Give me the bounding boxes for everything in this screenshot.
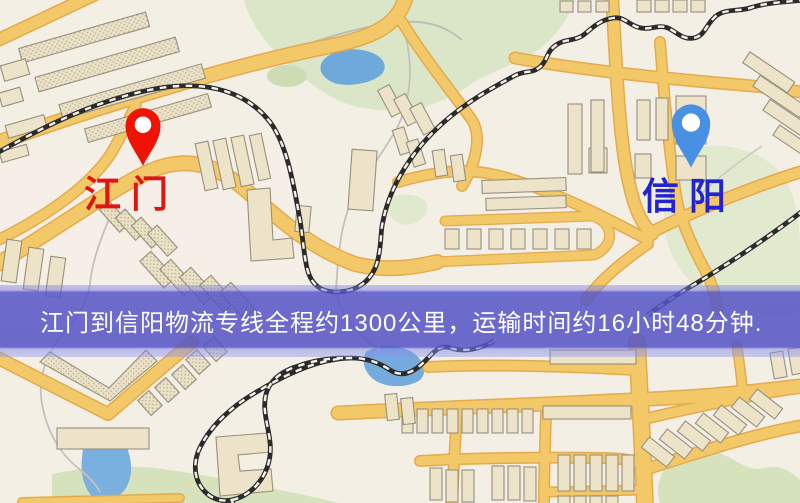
origin-pin-icon[interactable] [122, 104, 164, 170]
destination-city-label: 信阳 [642, 178, 736, 215]
origin-city-label: 江门 [84, 176, 178, 213]
route-info-banner: 江门到信阳物流专线全程约1300公里，运输时间约16小时48分钟. [0, 285, 800, 357]
map-screenshot: 江门 信阳 江门到信阳物流专线全程约1300公里，运输时间约16小时48分钟. [0, 0, 800, 503]
route-info-text: 江门到信阳物流专线全程约1300公里，运输时间约16小时48分钟. [0, 292, 800, 349]
destination-pin-icon[interactable] [668, 102, 714, 170]
map-canvas[interactable] [0, 0, 800, 503]
